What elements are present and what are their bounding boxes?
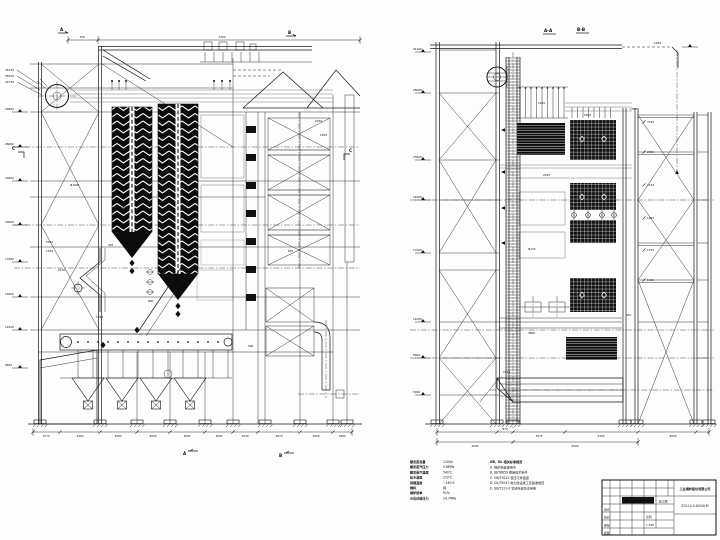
elevation-label: 23600 — [413, 155, 422, 159]
elevation-label: 11000 — [413, 317, 422, 321]
spec-value: 210℃ — [443, 476, 453, 480]
section-mark-c-right: C — [349, 148, 352, 153]
standards-item: A. 锅炉安装说明书 — [490, 465, 516, 470]
dim-label: 1310 — [647, 278, 654, 282]
dim-label: 500 — [248, 344, 254, 348]
dim-label: 2450 — [647, 150, 654, 154]
convection-bank-3 — [197, 270, 233, 300]
observation-ports — [146, 270, 154, 295]
dim-label: 1800 — [338, 434, 345, 438]
dim-label: 1350 — [630, 107, 637, 111]
dim-label: 3070 — [275, 434, 282, 438]
stair-tower — [345, 95, 354, 262]
economizer-bank — [519, 232, 565, 258]
standards-header: GB、DL 相关标准规范 — [490, 459, 523, 464]
elevation-label: 29600 — [5, 107, 14, 111]
scale-label: 比例 — [646, 515, 652, 519]
elevation-label: 36330 — [5, 68, 14, 72]
standards-item: C. GB/T9222 受压元件强度 — [490, 475, 529, 480]
elevation-label: 17600 — [5, 257, 14, 261]
section-mark-b: B — [288, 30, 291, 35]
ash-hopper — [140, 378, 172, 409]
boiler-side-elevation-view: 870 3075 5300 4000 4500 5000 A-A B-B 195… — [410, 27, 717, 448]
dim-label: 2420 — [543, 173, 550, 177]
elevation-label: 34730 — [5, 80, 14, 84]
boiler-front-elevation-view: A B C C A B 750 7200 36330 35500 34730 2… — [5, 27, 362, 458]
spec-value: 91% — [443, 491, 450, 495]
elevation-label: 23600 — [5, 176, 14, 180]
elevation-label: 21000 — [413, 195, 422, 199]
signature-label: 设计 — [604, 508, 610, 512]
section-arrow-a: A — [183, 451, 187, 456]
spec-value: 110t/h — [443, 460, 453, 464]
spec-label: 锅炉效率 — [409, 490, 423, 495]
elevation-label: 17000 — [413, 248, 422, 252]
dim-label: 2640 — [46, 240, 53, 244]
air-heater-bundle — [566, 337, 617, 360]
furnace-waterwall-panel-left — [112, 107, 152, 274]
tube-bank — [570, 278, 616, 312]
dim-label: 3075 — [535, 434, 542, 438]
convection-bank-2 — [201, 240, 244, 265]
section-arrow-b: B — [279, 453, 282, 458]
dim-label: 345 — [108, 243, 114, 247]
air-heater-and-duct — [266, 288, 360, 398]
elevation-label: 28000 — [413, 88, 422, 92]
drum-end-view — [487, 66, 507, 88]
furnace-waterwall-panel-right — [158, 104, 198, 317]
company-name: 工业锅炉股份有限公司 — [680, 486, 711, 491]
dim-label: 4500 — [471, 444, 478, 448]
dim-label: 3000 — [215, 434, 222, 438]
spec-label: 额定蒸汽压力 — [409, 464, 429, 469]
dim-label: 1959 — [96, 315, 103, 319]
dim-label: 800 — [148, 299, 154, 303]
title-block: 锅炉总图 工业锅炉股份有限公司 ZG110-9.8/540-M 施工图 比例 1… — [602, 480, 716, 535]
superheater-bank — [201, 115, 244, 178]
dim-label: 2430 — [315, 119, 322, 123]
dim-label: 3600 — [528, 331, 535, 335]
section-mark-c-left: C — [12, 146, 15, 151]
spec-label: 额定蒸发量 — [409, 459, 426, 464]
spec-value: 煤 — [443, 485, 446, 490]
boiler-general-arrangement-drawing: A B C C A B 750 7200 36330 35500 34730 2… — [0, 0, 720, 540]
dim-label: 3000 — [183, 434, 190, 438]
tube-bank — [570, 120, 616, 160]
dim-label: 750 — [79, 35, 85, 39]
dim-label: 3000 — [312, 434, 319, 438]
spec-label: 排烟温度 — [410, 480, 423, 485]
dim-label: 2740 — [58, 268, 65, 272]
dim-label: Φ1600 — [70, 183, 80, 187]
elevation-label: 8000 — [413, 353, 420, 357]
elevation-label: 31100 — [413, 47, 422, 51]
elevation-label: 26600 — [5, 142, 14, 146]
ash-hopper — [72, 378, 104, 409]
rear-pass-headers — [246, 126, 256, 301]
spec-value: 14.7MPa — [443, 496, 456, 500]
drawing-number: ZG110-9.8/540-M — [681, 504, 709, 508]
spec-label: 给水温度 — [409, 475, 423, 480]
dim-label: 7150 — [647, 120, 654, 124]
dim-label: 1570 — [42, 434, 49, 438]
dim-label: 1250 — [538, 101, 545, 105]
dim-label: 645 — [288, 249, 294, 253]
standards-list: GB、DL 相关标准规范 A. 锅炉安装说明书 B. JB/T8659 焊接技术… — [490, 459, 544, 490]
dim-label: 2130 — [503, 370, 510, 374]
ash-hopper — [174, 378, 206, 409]
dim-label: 1750 — [647, 248, 654, 252]
spec-label: 水压试验压力 — [409, 495, 429, 500]
elevation-label: 35500 — [5, 74, 14, 78]
elevation-label: 11600 — [5, 325, 14, 329]
dim-label: 16-Φ426 — [118, 205, 130, 209]
drawing-title: 锅炉总图 — [631, 499, 644, 504]
spec-value: 9.8MPa — [443, 465, 454, 469]
steam-piping — [70, 90, 333, 102]
section-title-aa: A-A — [544, 28, 553, 33]
dim-label: 1430 — [46, 249, 53, 253]
spec-table: 额定蒸发量 110t/h 额定蒸汽压力 9.8MPa 额定蒸汽温度 540℃ 给… — [409, 459, 456, 500]
dim-label: 1959 — [654, 41, 661, 45]
superheater-bundle — [517, 123, 565, 155]
spec-value: ~140℃ — [443, 481, 455, 485]
ash-hopper — [106, 378, 138, 409]
steam-drum — [37, 79, 78, 110]
elevation-label: 8600 — [5, 363, 12, 367]
drawing-sheet: A B C C A B 750 7200 36330 35500 34730 2… — [0, 0, 720, 540]
scale-value: 1:100 — [646, 523, 654, 527]
dim-label: 870 — [502, 427, 508, 431]
dim-label: 5300 — [597, 434, 604, 438]
section-title-bb: B-B — [577, 27, 585, 32]
dim-label: 3000 — [149, 434, 156, 438]
signature-label: 批准 — [604, 531, 610, 535]
dim-label: 5000 — [571, 444, 578, 448]
dim-label: Φ133 — [528, 247, 536, 251]
dim-label: 1950 — [647, 216, 654, 220]
tube-bank — [570, 220, 616, 243]
dim-label: 7200 — [218, 35, 225, 39]
dim-label: 2400 — [76, 434, 83, 438]
tube-bank — [570, 183, 616, 210]
dim-label: 970 — [626, 313, 632, 317]
spec-label: 额定蒸汽温度 — [409, 469, 429, 474]
dim-label: 4000 — [669, 434, 676, 438]
signature-label: 校对 — [604, 516, 610, 520]
elevation-label: 5000 — [413, 390, 420, 394]
standards-item: D. DL/T5047 电力建设施工及验收规范 — [490, 480, 544, 485]
signature-label: 审核 — [604, 524, 610, 528]
section-mark-a: A — [60, 27, 64, 32]
economizer-bank — [519, 192, 565, 225]
chain-grate — [60, 334, 232, 350]
stage-label: 施工图 — [659, 500, 668, 504]
standards-item: E. GB/T121-0 管道布置及支吊架 — [490, 485, 536, 490]
standards-item: B. JB/T8659 焊接技术条件 — [490, 470, 527, 475]
elevation-label: 20600 — [5, 220, 14, 224]
dim-label: 3000 — [114, 434, 121, 438]
spec-value: 540℃ — [443, 470, 453, 474]
dim-label: 1250 — [320, 133, 327, 137]
dim-label: 2500 — [584, 113, 591, 117]
spec-label: 燃料 — [410, 485, 417, 490]
dim-label: 2143 — [647, 183, 654, 187]
elevation-label: 14600 — [5, 292, 14, 296]
dim-label: 2540 — [241, 434, 248, 438]
coal-hopper — [40, 350, 97, 424]
